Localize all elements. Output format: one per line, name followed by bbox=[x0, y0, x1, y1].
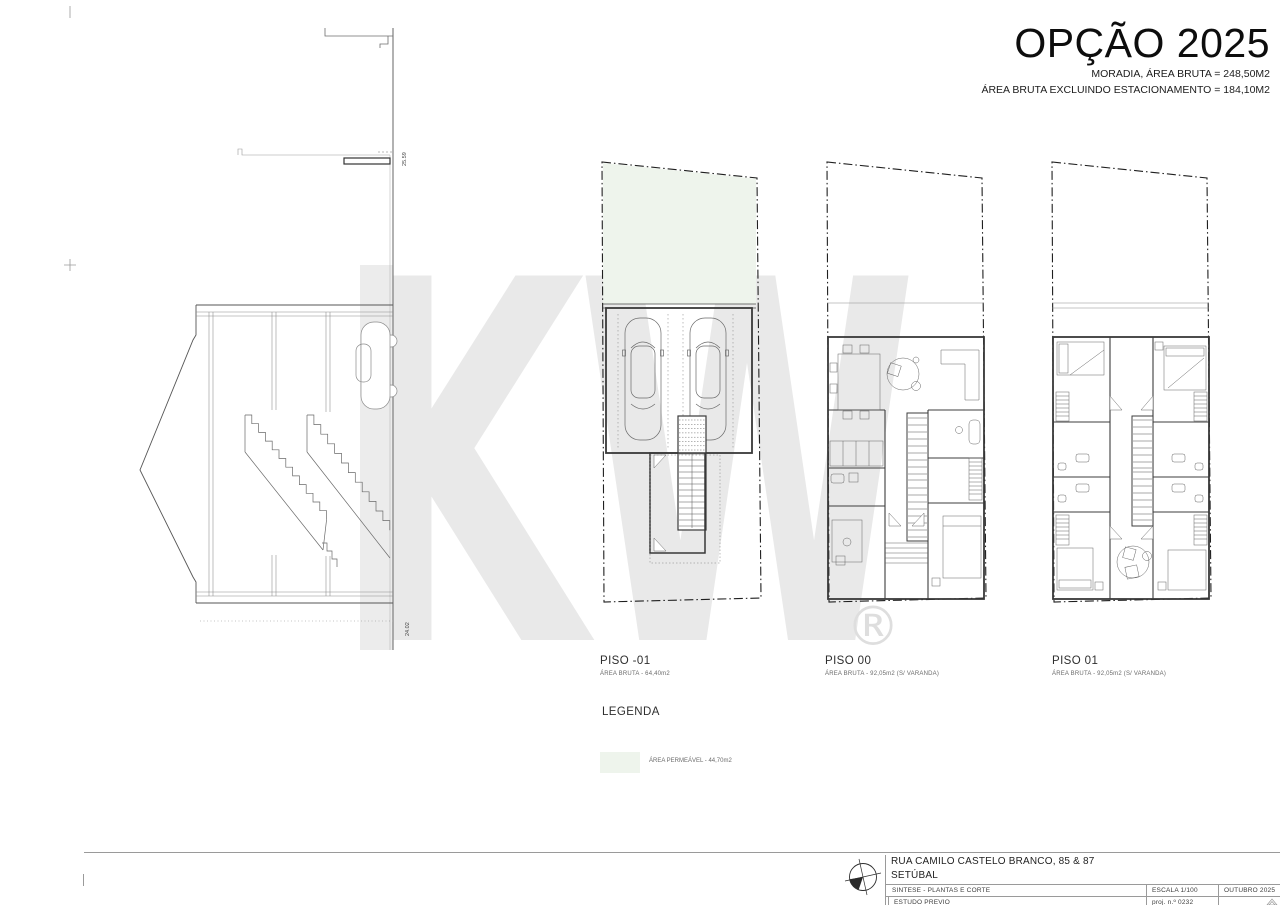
plan-title: PISO 00 bbox=[825, 655, 939, 667]
plan-area: ÁREA BRUTA - 92,05m2 (S/ VARANDA) bbox=[825, 671, 939, 677]
gross-area-excl-parking-line: ÁREA BRUTA EXCLUINDO ESTACIONAMENTO = 18… bbox=[981, 83, 1270, 97]
office-logo-icon bbox=[1266, 898, 1278, 905]
titleblock-divider bbox=[885, 855, 886, 905]
bed bbox=[1057, 342, 1104, 375]
titleblock-divider bbox=[1218, 884, 1219, 905]
title-block: RUA CAMILO CASTELO BRANCO, 85 & 87 SETÚB… bbox=[840, 853, 1280, 905]
option-title: OPÇÃO 2025 bbox=[981, 22, 1270, 65]
lower-roof-edge bbox=[1052, 303, 1209, 308]
plan-area: ÁREA BRUTA - 64,40m2 bbox=[600, 671, 670, 677]
project-number: proj. n.º 0232 bbox=[1152, 899, 1193, 905]
plan-label-piso-00: PISO 00 ÁREA BRUTA - 92,05m2 (S/ VARANDA… bbox=[825, 655, 939, 677]
plan-piso-01 bbox=[1048, 158, 1218, 608]
stairs bbox=[678, 416, 706, 530]
plan-piso-00 bbox=[823, 158, 993, 608]
plan-area: ÁREA BRUTA - 92,05m2 (S/ VARANDA) bbox=[1052, 671, 1166, 677]
armchair bbox=[887, 363, 901, 377]
sheet-header: OPÇÃO 2025 MORADIA, ÁREA BRUTA = 248,50M… bbox=[981, 22, 1270, 97]
plan-piso-m01 bbox=[598, 158, 768, 608]
drawing-scale: ESCALA 1/100 bbox=[1152, 887, 1198, 894]
bed bbox=[1164, 346, 1206, 390]
kitchen-counter bbox=[830, 441, 883, 466]
gross-area-line: MORADIA, ÁREA BRUTA = 248,50M2 bbox=[981, 67, 1270, 81]
furniture bbox=[830, 345, 982, 586]
sheet-subject: SINTESE - PLANTAS E CORTE bbox=[892, 887, 990, 894]
l-sofa bbox=[941, 350, 979, 400]
registration-marks bbox=[64, 6, 76, 271]
bed bbox=[943, 516, 981, 578]
desk bbox=[832, 520, 862, 562]
bathtub bbox=[969, 420, 980, 444]
titleblock-tick bbox=[888, 897, 889, 905]
project-city: SETÚBAL bbox=[891, 870, 938, 881]
legend-item-label: ÁREA PERMEÁVEL - 44,70m2 bbox=[649, 758, 732, 764]
plan-label-piso-m01: PISO -01 ÁREA BRUTA - 64,40m2 bbox=[600, 655, 670, 677]
parking-bay-lines bbox=[618, 314, 733, 450]
dim-label-lower: 24.02 bbox=[405, 622, 411, 636]
house-section-outline bbox=[140, 305, 393, 603]
project-address: RUA CAMILO CASTELO BRANCO, 85 & 87 bbox=[891, 856, 1095, 867]
permeable-area bbox=[603, 163, 756, 304]
plan-label-piso-01: PISO 01 ÁREA BRUTA - 92,05m2 (S/ VARANDA… bbox=[1052, 655, 1166, 677]
section-drawing: 25.59 24.02 bbox=[60, 0, 420, 660]
upper-dimension: 25.59 bbox=[238, 149, 408, 166]
lot-boundary bbox=[1052, 162, 1211, 602]
legend-swatch-permeable bbox=[600, 752, 640, 773]
closet bbox=[1194, 515, 1207, 545]
titleblock-rule bbox=[885, 896, 1280, 897]
steps bbox=[885, 543, 928, 563]
project-phase: ESTUDO PREVIO bbox=[894, 899, 950, 905]
closet bbox=[1056, 392, 1069, 421]
dim-label-upper: 25.59 bbox=[402, 152, 408, 166]
drawing-date: OUTUBRO 2025 bbox=[1224, 887, 1275, 894]
plan-title: PISO -01 bbox=[600, 655, 670, 667]
bed bbox=[1168, 550, 1206, 590]
bed bbox=[1057, 548, 1093, 590]
stairs bbox=[1132, 416, 1153, 526]
partition-walls bbox=[828, 410, 984, 599]
titleblock-rule bbox=[885, 884, 1280, 885]
closet bbox=[1194, 392, 1207, 421]
plan-title: PISO 01 bbox=[1052, 655, 1166, 667]
door-swings bbox=[654, 455, 666, 551]
legend-heading: LEGENDA bbox=[602, 706, 660, 718]
car-top-icon bbox=[623, 318, 664, 440]
rug bbox=[1117, 546, 1149, 578]
closet bbox=[1056, 515, 1069, 545]
closet bbox=[969, 458, 982, 500]
canopy-slab bbox=[344, 158, 390, 164]
titleblock-divider bbox=[1146, 884, 1147, 905]
drawing-sheet: KW ® 25.59 bbox=[0, 0, 1280, 905]
dining-table bbox=[838, 354, 880, 410]
north-compass-icon bbox=[844, 858, 882, 896]
registration-tick bbox=[83, 874, 84, 886]
